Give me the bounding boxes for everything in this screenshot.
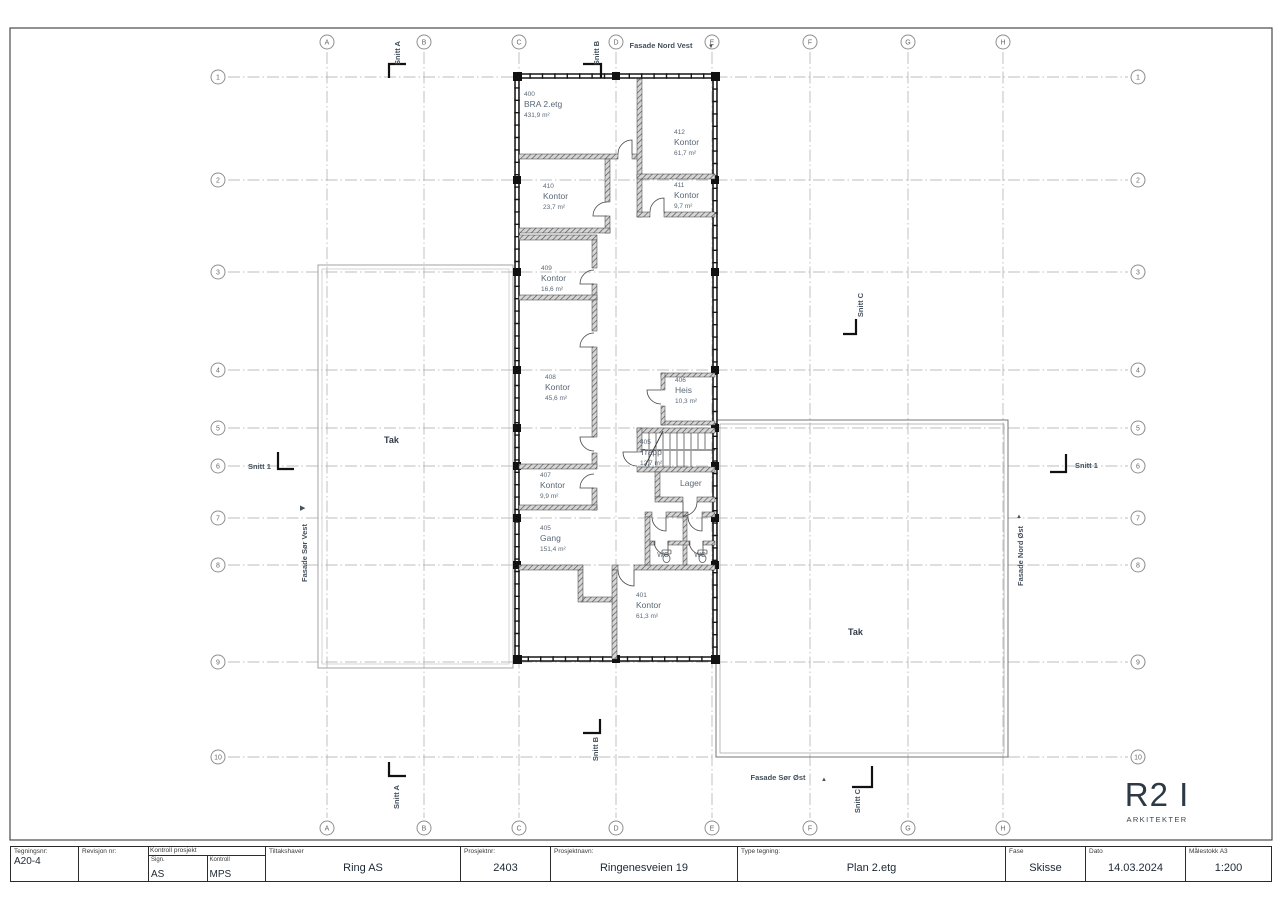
room-number: 405: [640, 439, 651, 446]
room-label-401-kontor: 401Kontor61,3 m²: [636, 592, 661, 620]
field-label: Prosjektnavn:: [554, 848, 734, 855]
grid-bubble-left-8-label: 8: [216, 563, 220, 570]
title-block: Tegningsnr: A20-4 Revisjon nr: Kontroll …: [10, 846, 1272, 882]
room-number: 410: [543, 183, 554, 190]
room-number: 405: [540, 525, 551, 532]
field-label: Sign.: [151, 857, 205, 863]
room-name: Kontor: [540, 480, 565, 490]
grid-bubble-bottom-D-label: D: [613, 826, 618, 833]
field-value: 2403: [464, 855, 547, 880]
annotation-fasade-s-r-st: Fasade Sør Øst: [750, 773, 806, 782]
room-name: Gang: [540, 533, 561, 543]
room-label-408-kontor: 408Kontor45,6 m²: [545, 374, 570, 402]
room-area: 9,7 m²: [674, 203, 693, 210]
grid-bubble-top-A-label: A: [325, 40, 330, 47]
room-name: Kontor: [545, 382, 570, 392]
room-number: 411: [674, 182, 685, 189]
grid-bubble-left-1-label: 1: [216, 75, 220, 82]
room-name: Kontor: [674, 190, 699, 200]
grid-bubble-bottom-C-label: C: [516, 826, 521, 833]
grid-bubble-bottom-F-label: F: [808, 826, 812, 833]
room-label-400-bra-2-etg: 400BRA 2.etg431,9 m²: [524, 91, 563, 119]
field-tegningsnr: Tegningsnr: A20-4: [11, 847, 79, 881]
grid-bubble-top-C-label: C: [516, 40, 521, 47]
field-malestokk: Målestokk A3 1:200: [1186, 847, 1271, 881]
field-value: [82, 855, 145, 880]
room-label-407-kontor: 407Kontor9,9 m²: [540, 472, 565, 500]
room-area: 61,3 m²: [636, 613, 659, 620]
field-label: Tiltakshaver: [269, 848, 457, 855]
grid-bubble-right-1-label: 1: [1136, 75, 1140, 82]
annotation-snitt-c: Snitt C: [856, 292, 865, 317]
room-number: 408: [545, 374, 556, 381]
annotation--: ▲: [1016, 514, 1022, 520]
room-number: 412: [674, 129, 685, 136]
field-kontroll: Kontroll MPS: [208, 856, 266, 881]
grid-bubble-bottom-A-label: A: [325, 826, 330, 833]
annotation-snitt-1: Snitt 1: [1075, 461, 1098, 470]
grid-bubble-bottom-H-label: H: [1000, 826, 1005, 833]
annotation-snitt-b: Snitt B: [592, 40, 601, 65]
field-sign: Sign. AS: [149, 856, 208, 881]
annotation-wc: WC: [694, 552, 706, 559]
room-name: Heis: [675, 385, 692, 395]
logo-subtitle: ARKITEKTER: [1126, 815, 1187, 824]
grid-bubble-left-3-label: 3: [216, 270, 220, 277]
grid-bubble-left-10-label: 10: [214, 755, 222, 762]
drawing-sheet: AABBCCDDEEFFGGHH1122334455667788991010: [0, 0, 1283, 904]
grid-bubble-left-5-label: 5: [216, 426, 220, 433]
annotation-wc: WC: [657, 552, 669, 559]
grid-bubble-right-5-label: 5: [1136, 426, 1140, 433]
room-label-405-trapp: 405Trapp12,7 m²: [640, 439, 663, 467]
grid-bubble-left-6-label: 6: [216, 464, 220, 471]
room-name: Trapp: [640, 447, 662, 457]
grid-bubble-left-2-label: 2: [216, 178, 220, 185]
room-name: Kontor: [674, 137, 699, 147]
annotation-fasade-nord-st: Fasade Nord Øst: [1016, 525, 1025, 586]
field-label: Dato: [1089, 848, 1182, 855]
room-area: 431,9 m²: [524, 112, 550, 119]
grid-bubble-right-3-label: 3: [1136, 270, 1140, 277]
grid-bubble-right-9-label: 9: [1136, 660, 1140, 667]
annotation-fasade-s-r-vest: Fasade Sør Vest: [300, 524, 309, 582]
grid-bubble-top-H-label: H: [1000, 40, 1005, 47]
field-value: Ring AS: [269, 855, 457, 880]
room-area: 10,3 m²: [675, 398, 698, 405]
annotation--: ▼: [708, 44, 714, 50]
annotation-snitt-b: Snitt B: [591, 736, 600, 761]
room-label-405-gang: 405Gang151,4 m²: [540, 525, 566, 553]
field-label: Prosjektnr:: [464, 848, 547, 855]
field-label: Kontroll prosjekt: [149, 847, 265, 856]
field-value: 1:200: [1189, 855, 1268, 880]
room-name: Kontor: [543, 191, 568, 201]
interior-walls: [519, 79, 715, 659]
grid-bubble-right-4-label: 4: [1136, 368, 1140, 375]
roof-terrace-west: [318, 265, 513, 668]
field-revisjon: Revisjon nr:: [79, 847, 149, 881]
grid-bubble-top-D-label: D: [613, 40, 618, 47]
architect-logo: R2 I ARKITEKTER: [1125, 776, 1190, 824]
room-area: 45,6 m²: [545, 395, 568, 402]
roof-terrace-east: [716, 420, 1008, 757]
field-label: Type tegning:: [741, 848, 1002, 855]
room-label-409-kontor: 409Kontor16,6 m²: [541, 265, 566, 293]
grid-bubble-right-6-label: 6: [1136, 464, 1140, 471]
grid-bubble-top-F-label: F: [808, 40, 812, 47]
annotation-snitt-a: Snitt A: [393, 40, 402, 64]
field-value: Skisse: [1009, 855, 1082, 880]
field-label: Tegningsnr:: [14, 848, 75, 855]
room-name: Kontor: [636, 600, 661, 610]
room-label-411-kontor: 411Kontor9,7 m²: [674, 182, 699, 210]
annotation-tak: Tak: [848, 627, 864, 637]
annotation--: ▲: [821, 777, 827, 783]
grid-bubble-bottom-G-label: G: [905, 826, 910, 833]
room-area: 151,4 m²: [540, 546, 566, 553]
annotation-fasade-nord-vest: Fasade Nord Vest: [630, 41, 693, 50]
room-name: Kontor: [541, 273, 566, 283]
grid-bubble-right-8-label: 8: [1136, 563, 1140, 570]
field-value: A20-4: [14, 855, 75, 880]
grid-bubble-right-2-label: 2: [1136, 178, 1140, 185]
field-type-tegning: Type tegning: Plan 2.etg: [738, 847, 1006, 881]
room-area: 16,6 m²: [541, 286, 564, 293]
field-value: Plan 2.etg: [741, 855, 1002, 880]
field-prosjektnr: Prosjektnr: 2403: [461, 847, 551, 881]
field-label: Revisjon nr:: [82, 848, 145, 855]
room-label-406-heis: 406Heis10,3 m²: [675, 377, 698, 405]
field-value: MPS: [210, 869, 264, 880]
annotation-snitt-a: Snitt A: [392, 784, 401, 808]
grid-bubble-left-4-label: 4: [216, 368, 220, 375]
annotation-tak: Tak: [384, 435, 400, 445]
room-area: 12,7 m²: [640, 460, 663, 467]
field-tiltakshaver: Tiltakshaver Ring AS: [266, 847, 461, 881]
room-area: 61,7 m²: [674, 150, 697, 157]
annotation-lager: Lager: [680, 478, 702, 488]
grid-bubble-right-10-label: 10: [1134, 755, 1142, 762]
text-layer: 400BRA 2.etg431,9 m²412Kontor61,7 m²410K…: [248, 40, 1098, 813]
room-area: 23,7 m²: [543, 204, 566, 211]
field-dato: Dato 14.03.2024: [1086, 847, 1186, 881]
room-number: 401: [636, 592, 647, 599]
grid-bubble-left-7-label: 7: [216, 516, 220, 523]
field-label: Målestokk A3: [1189, 848, 1268, 855]
field-kontroll-prosjekt: Kontroll prosjekt Sign. AS Kontroll MPS: [149, 847, 266, 881]
kontroll-row: Sign. AS Kontroll MPS: [149, 856, 265, 881]
grid-bubble-top-B-label: B: [422, 40, 427, 47]
field-prosjektnavn: Prosjektnavn: Ringenesveien 19: [551, 847, 738, 881]
grid-bubble-bottom-E-label: E: [710, 826, 715, 833]
room-label-412-kontor: 412Kontor61,7 m²: [674, 129, 699, 157]
grid-bubble-right-7-label: 7: [1136, 516, 1140, 523]
field-value: AS: [151, 869, 205, 880]
room-number: 406: [675, 377, 686, 384]
room-name: BRA 2.etg: [524, 99, 563, 109]
field-fase: Fase Skisse: [1006, 847, 1086, 881]
section-markers: [278, 64, 1066, 787]
grid-bubble-top-G-label: G: [905, 40, 910, 47]
field-value: Ringenesveien 19: [554, 855, 734, 880]
field-label: Kontroll: [210, 857, 264, 863]
field-label: Fase: [1009, 848, 1082, 855]
room-label-410-kontor: 410Kontor23,7 m²: [543, 183, 568, 211]
annotation--: ▶: [300, 505, 306, 512]
logo-title: R2 I: [1125, 776, 1190, 813]
room-number: 400: [524, 91, 535, 98]
annotation-snitt-1: Snitt 1: [248, 462, 271, 471]
room-area: 9,9 m²: [540, 493, 559, 500]
field-value: 14.03.2024: [1089, 855, 1182, 880]
floor-plan-canvas: AABBCCDDEEFFGGHH1122334455667788991010: [0, 0, 1283, 845]
annotation-snitt-c: Snitt C: [853, 788, 862, 813]
grid-bubble-bottom-B-label: B: [422, 826, 427, 833]
room-number: 409: [541, 265, 552, 272]
grid-bubble-left-9-label: 9: [216, 660, 220, 667]
room-number: 407: [540, 472, 551, 479]
